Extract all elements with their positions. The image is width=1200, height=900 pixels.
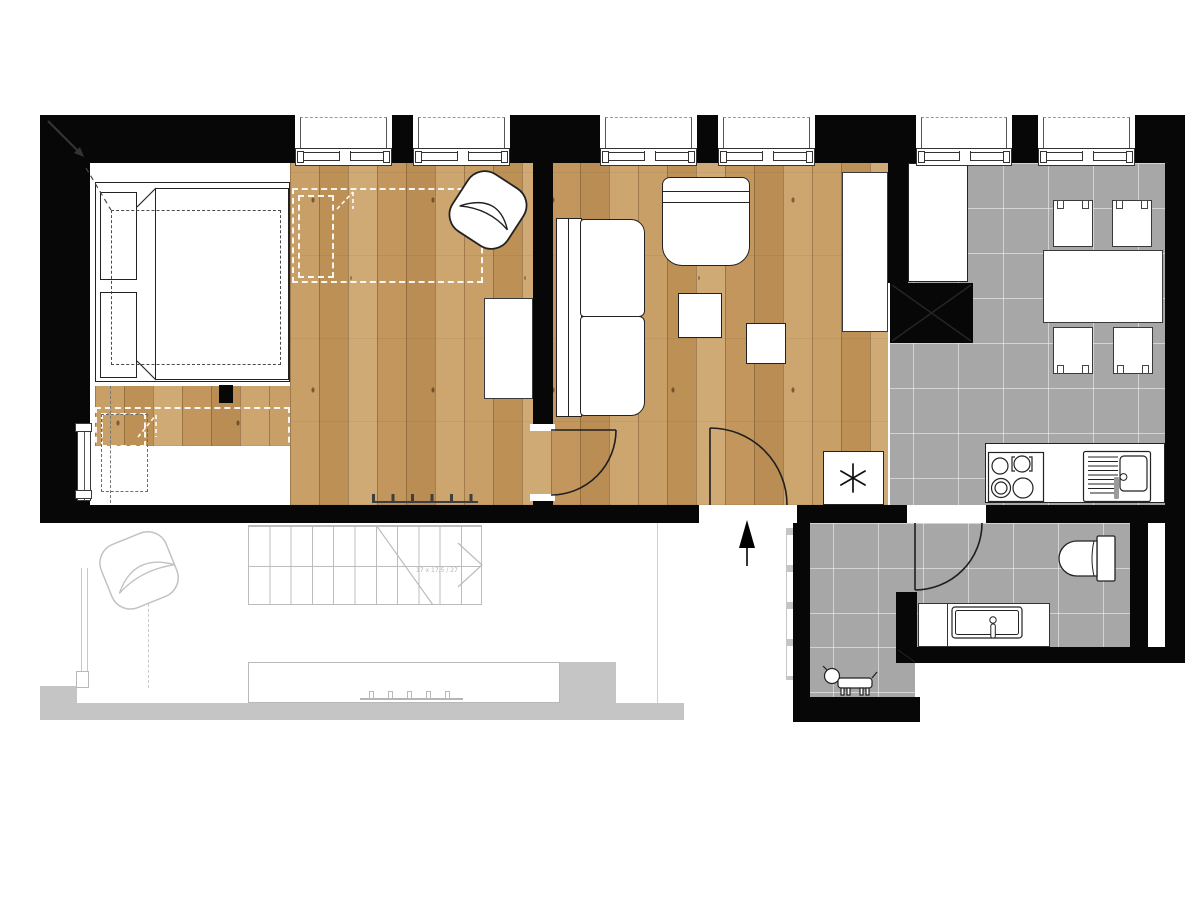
armchair — [662, 177, 750, 266]
sofa-back — [556, 218, 582, 417]
window-frame — [718, 148, 815, 166]
side-cabinet — [842, 172, 888, 332]
dashed-wardrobe — [101, 414, 148, 492]
ghost-line-a — [81, 568, 82, 686]
dining-chair — [1053, 200, 1093, 247]
bed-duvet-dashed — [111, 210, 281, 365]
balcony-door-cap — [75, 490, 92, 499]
door-jamb — [530, 494, 555, 501]
dining-chair — [1112, 200, 1152, 247]
floor-plan: 17 x 17,5 / 27 — [0, 0, 1200, 900]
wall-top — [1012, 115, 1038, 163]
ghost-railing — [786, 528, 793, 680]
ghost-bar-stool — [369, 691, 374, 699]
ghost-slab-left-block — [40, 686, 77, 720]
desk — [484, 298, 533, 399]
dining-table — [1043, 250, 1163, 323]
window-frame — [600, 148, 697, 166]
sofa-seat — [580, 316, 645, 416]
window — [916, 117, 1012, 164]
duct-void — [1148, 523, 1165, 647]
ghost-dashed-line — [148, 568, 150, 688]
wall-living-kitchen — [888, 163, 908, 283]
window — [718, 117, 815, 164]
dining-chair — [1053, 327, 1093, 374]
wall-bath-bottom — [917, 647, 1185, 663]
shaft-block — [890, 283, 973, 343]
wall-bath-stub — [896, 592, 917, 663]
window-sill — [723, 117, 810, 150]
door-jamb — [699, 505, 709, 523]
wall-top-right-corner — [1135, 115, 1185, 163]
ghost-bar-stool — [445, 691, 450, 699]
washbasin-counter — [918, 603, 1050, 647]
window-sill — [1043, 117, 1130, 150]
ghost-bar-stool — [388, 691, 393, 699]
dashed-outline-a-inner — [298, 195, 334, 278]
ghost-kitchen-island — [248, 662, 560, 703]
wall-top — [815, 115, 916, 163]
window-frame — [295, 148, 392, 166]
window-frame — [413, 148, 510, 166]
armchair-cushion-line — [663, 191, 749, 192]
wall-bedroom-living — [533, 163, 553, 425]
door-jamb — [787, 505, 797, 523]
wall-middle-horizontal — [978, 505, 1185, 523]
wall-bedroom-living — [533, 501, 553, 523]
dashed-vertical — [110, 386, 112, 503]
wall-middle-horizontal — [40, 505, 703, 523]
ghost-slab-band — [77, 703, 684, 720]
door-jamb — [907, 505, 917, 523]
dining-chair — [1113, 327, 1153, 374]
coffee-table — [678, 293, 722, 338]
wall-top — [697, 115, 718, 163]
ghost-staircase — [248, 525, 482, 605]
railing-balusters — [372, 494, 478, 503]
window — [600, 117, 697, 164]
tall-cabinet — [908, 163, 968, 282]
window-sill — [921, 117, 1007, 150]
ghost-lounge-chair — [94, 526, 184, 615]
wall-duct — [1130, 515, 1148, 647]
ghost-bar-stool — [407, 691, 412, 699]
utility-box — [823, 451, 884, 505]
window-frame — [1038, 148, 1135, 166]
window — [413, 117, 510, 164]
wall-top — [510, 115, 600, 163]
wall-hall-bottom — [793, 697, 920, 722]
window-sill — [300, 117, 387, 150]
wall-top — [392, 115, 413, 163]
window-sill — [418, 117, 505, 150]
side-table — [746, 323, 786, 364]
balcony-door-cap — [75, 423, 92, 432]
door-jamb — [977, 505, 986, 523]
entry-arrow-icon — [739, 520, 755, 566]
ghost-wall-line — [657, 523, 658, 703]
window — [295, 117, 392, 164]
wall-stub-corridor — [219, 385, 233, 403]
wall-right — [1165, 163, 1185, 663]
ghost-line-b — [87, 568, 88, 686]
window-frame — [916, 148, 1012, 166]
wall-middle-horizontal — [788, 505, 917, 523]
wall-hall-left — [793, 523, 810, 697]
window — [1038, 117, 1135, 164]
ghost-door-element — [76, 671, 89, 688]
window-sill — [605, 117, 692, 150]
ghost-bar-stool — [426, 691, 431, 699]
armchair-cushion-line — [663, 202, 749, 203]
sofa-seat — [580, 219, 645, 317]
ghost-island-block — [560, 662, 616, 703]
kitchen-counter — [985, 443, 1165, 503]
door-jamb — [530, 424, 555, 431]
